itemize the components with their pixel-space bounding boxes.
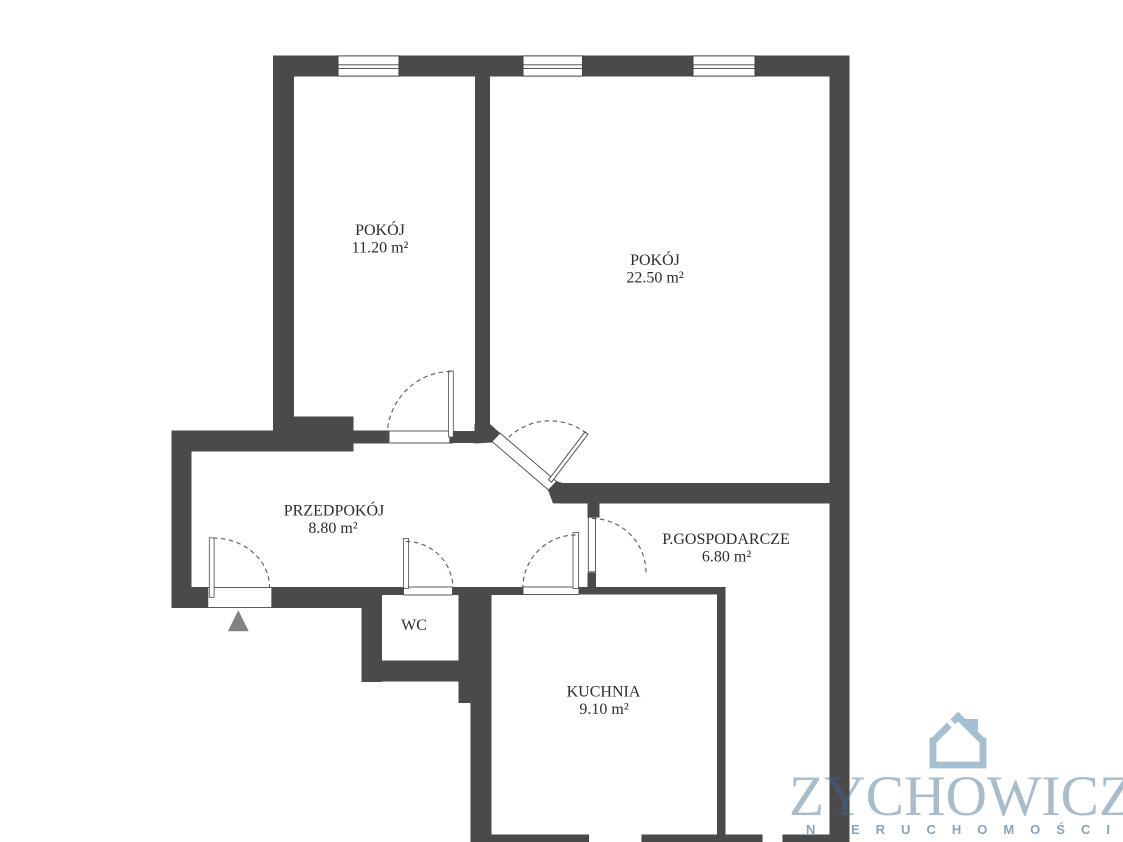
svg-text:POKÓJ: POKÓJ xyxy=(630,250,680,269)
svg-text:6.80 m²: 6.80 m² xyxy=(702,549,751,566)
svg-text:11.20 m²: 11.20 m² xyxy=(352,240,409,257)
svg-text:8.80 m²: 8.80 m² xyxy=(308,520,357,537)
svg-text:9.10 m²: 9.10 m² xyxy=(579,701,628,718)
svg-text:P.GOSPODARCZE: P.GOSPODARCZE xyxy=(662,531,790,548)
svg-text:NIERUCHOMOŚCI: NIERUCHOMOŚCI xyxy=(806,822,1123,837)
svg-text:WC: WC xyxy=(401,617,427,634)
svg-text:PRZEDPOKÓJ: PRZEDPOKÓJ xyxy=(284,501,384,520)
svg-text:POKÓJ: POKÓJ xyxy=(355,220,405,239)
svg-text:KUCHNIA: KUCHNIA xyxy=(567,684,641,701)
svg-text:22.50 m²: 22.50 m² xyxy=(626,270,683,287)
